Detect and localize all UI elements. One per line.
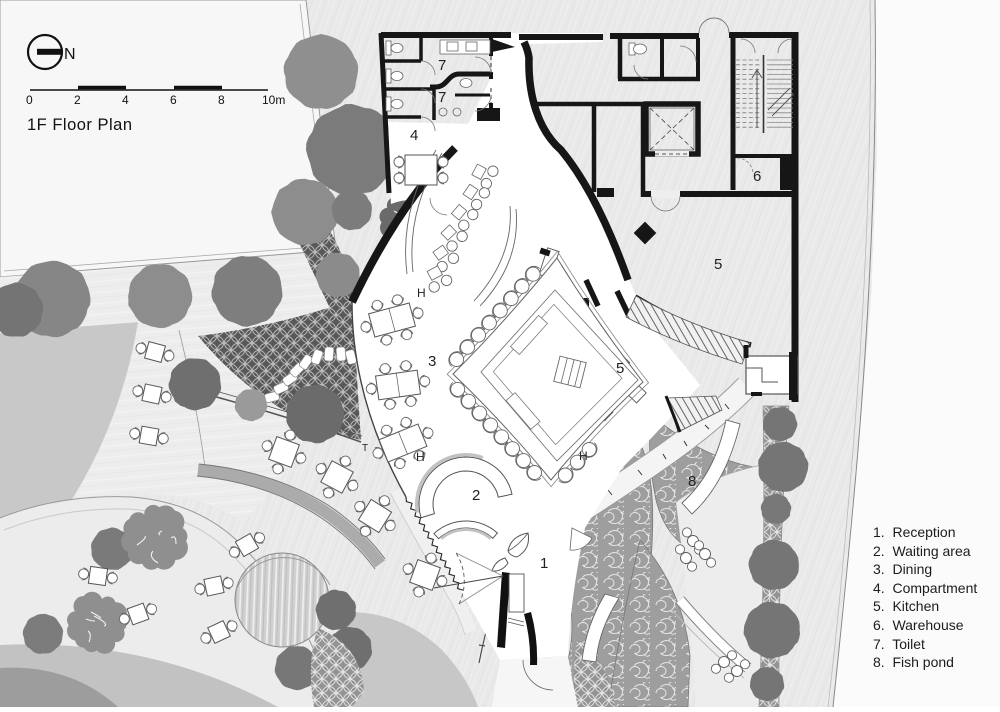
- svg-text:N: N: [64, 46, 76, 63]
- svg-text:6. Warehouse: 6. Warehouse: [873, 617, 964, 633]
- svg-text:2. Waiting area: 2. Waiting area: [873, 543, 971, 559]
- svg-text:7. Toilet: 7. Toilet: [873, 636, 925, 652]
- svg-text:1F Floor Plan: 1F Floor Plan: [27, 116, 133, 134]
- svg-text:1. Reception: 1. Reception: [873, 524, 956, 540]
- svg-text:T: T: [362, 443, 368, 454]
- svg-text:8: 8: [688, 473, 696, 490]
- svg-text:6: 6: [170, 93, 177, 107]
- svg-text:H: H: [416, 450, 425, 464]
- svg-text:8. Fish pond: 8. Fish pond: [873, 654, 954, 670]
- svg-text:6: 6: [753, 168, 761, 185]
- svg-text:3. Dining: 3. Dining: [873, 561, 932, 577]
- svg-text:7: 7: [438, 89, 446, 106]
- svg-text:10m: 10m: [262, 93, 285, 107]
- svg-text:3: 3: [428, 353, 436, 370]
- svg-text:8: 8: [218, 93, 225, 107]
- svg-text:H: H: [579, 449, 588, 463]
- svg-text:2: 2: [472, 487, 480, 504]
- svg-text:2: 2: [74, 93, 81, 107]
- svg-text:1: 1: [540, 555, 548, 572]
- svg-text:H: H: [417, 286, 426, 300]
- svg-text:0: 0: [26, 93, 33, 107]
- svg-text:5. Kitchen: 5. Kitchen: [873, 598, 939, 614]
- svg-text:5: 5: [616, 360, 624, 377]
- svg-text:4: 4: [410, 127, 418, 144]
- svg-text:5: 5: [714, 256, 722, 273]
- svg-text:4: 4: [122, 93, 129, 107]
- svg-text:7: 7: [438, 57, 446, 74]
- svg-text:4. Compartment: 4. Compartment: [873, 580, 977, 596]
